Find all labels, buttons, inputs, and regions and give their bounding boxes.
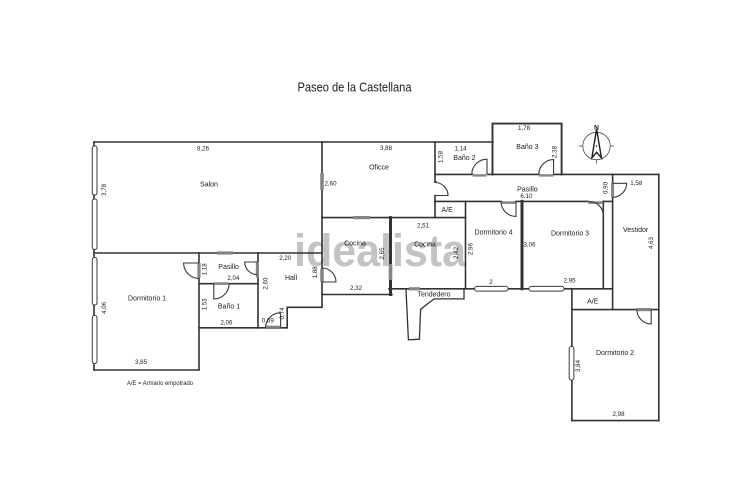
svg-text:N: N [594,125,599,132]
svg-text:2,98: 2,98 [612,411,625,418]
svg-text:Baño 2: Baño 2 [453,155,475,162]
svg-text:3,06: 3,06 [523,242,536,249]
svg-text:Dormitorio 2: Dormitorio 2 [596,350,634,357]
svg-text:0,74: 0,74 [279,307,286,320]
svg-text:6,10: 6,10 [520,193,533,200]
svg-text:3,84: 3,84 [575,359,582,372]
svg-text:1,58: 1,58 [438,150,445,163]
svg-text:3,88: 3,88 [380,145,393,152]
svg-text:A/E: A/E [587,298,599,305]
svg-text:2,38: 2,38 [552,145,559,158]
svg-text:Vestidor: Vestidor [623,227,649,234]
svg-text:Tendedero: Tendedero [417,291,450,298]
svg-text:1,53: 1,53 [201,298,208,311]
svg-text:4,63: 4,63 [648,236,655,249]
svg-text:Cocina: Cocina [414,241,436,248]
svg-text:1,58: 1,58 [630,180,643,187]
svg-text:A/E: A/E [442,207,454,214]
svg-text:Paseo de la Castellana: Paseo de la Castellana [298,80,413,95]
svg-text:4,06: 4,06 [101,301,108,314]
svg-text:0,69: 0,69 [262,318,275,325]
svg-text:A/E = Armario empotrado: A/E = Armario empotrado [127,380,193,387]
svg-text:2: 2 [489,279,493,286]
svg-text:2,06: 2,06 [220,320,233,327]
svg-text:2,96: 2,96 [468,242,475,255]
svg-text:1,18: 1,18 [201,263,208,276]
svg-text:2,60: 2,60 [324,181,337,188]
svg-text:Baño 1: Baño 1 [218,304,240,311]
svg-text:Dormitorio 4: Dormitorio 4 [475,229,513,236]
svg-text:2,51: 2,51 [417,223,430,230]
svg-text:2,20: 2,20 [279,255,292,262]
svg-text:2,42: 2,42 [453,246,460,259]
svg-text:3,85: 3,85 [135,359,148,366]
svg-text:Baño 3: Baño 3 [516,144,538,151]
svg-text:3,78: 3,78 [101,183,108,196]
svg-text:Pasillo: Pasillo [218,264,239,271]
svg-text:Salon: Salon [200,182,218,189]
svg-text:1,78: 1,78 [518,125,531,132]
svg-text:Dormitorio 3: Dormitorio 3 [551,230,589,237]
svg-text:2,04: 2,04 [227,275,240,282]
svg-text:Cocina: Cocina [344,241,366,248]
svg-text:8,26: 8,26 [197,146,210,153]
svg-text:2,32: 2,32 [350,285,363,292]
svg-text:1,14: 1,14 [455,146,468,153]
svg-text:Oficce: Oficce [369,164,389,171]
svg-text:2,65: 2,65 [379,247,386,260]
svg-text:0,90: 0,90 [603,181,610,194]
svg-text:2,60: 2,60 [262,277,269,290]
svg-text:1,88: 1,88 [312,266,319,279]
svg-text:Dormitorio 1: Dormitorio 1 [128,295,166,302]
svg-text:2,95: 2,95 [564,278,577,285]
svg-text:Hall: Hall [285,275,298,282]
